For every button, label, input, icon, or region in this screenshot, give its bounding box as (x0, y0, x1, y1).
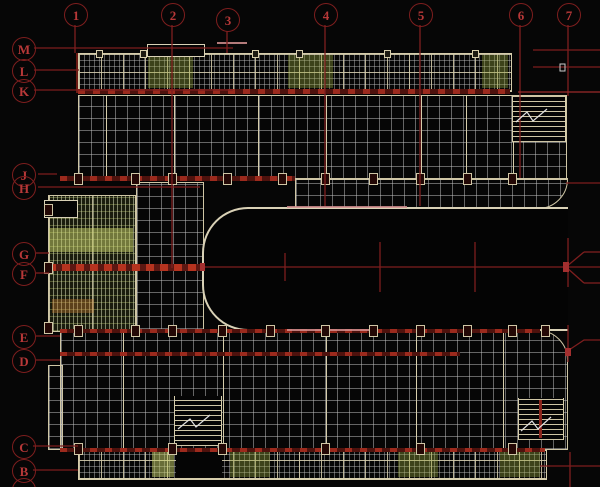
pink-accent (217, 42, 247, 44)
green-hatch-patch (288, 55, 333, 88)
axis-bubble-2: 2 (161, 3, 185, 27)
balcony-gap (176, 449, 222, 479)
column-marker (278, 173, 287, 185)
column-marker (168, 173, 177, 185)
column-marker (131, 173, 140, 185)
column-marker (321, 325, 330, 337)
top-wing-corridor-grid (295, 178, 568, 209)
red-wall-band (60, 352, 460, 356)
wall-line (421, 96, 422, 179)
wall-line (326, 96, 327, 179)
bottom-wing-balcony-grid (78, 450, 547, 480)
red-axis-band (48, 264, 205, 271)
bottom-wing-left-stub (48, 365, 63, 450)
axis-bubble-4: 4 (314, 3, 338, 27)
stair-top-right (512, 96, 566, 142)
column-marker (223, 173, 232, 185)
red-wall-band (60, 176, 295, 181)
wall-line (326, 331, 327, 449)
column-marker (218, 325, 227, 337)
green-hatch-patch (230, 451, 270, 477)
bottom-wing-room-grid (60, 330, 568, 450)
red-wall-band (78, 89, 510, 94)
red-wall-accent (76, 53, 78, 93)
column-marker (472, 50, 479, 58)
top-wing-room-grid (78, 95, 567, 180)
axis-bubble-6: 6 (509, 3, 533, 27)
column-marker (416, 443, 425, 455)
axis-bubble-5: 5 (409, 3, 433, 27)
column-marker (369, 325, 378, 337)
column-marker (321, 173, 330, 185)
column-marker (218, 443, 227, 455)
column-marker (74, 173, 83, 185)
column-marker (384, 50, 391, 58)
green-hatch-patch (482, 55, 508, 88)
axis-bubble-F: F (12, 262, 36, 286)
pink-accent (287, 206, 407, 208)
column-marker (168, 443, 177, 455)
axis-bubble-K: K (12, 79, 36, 103)
axis-bubble-D: D (12, 349, 36, 373)
column-marker (252, 50, 259, 58)
column-marker (44, 322, 53, 334)
column-marker (140, 50, 147, 58)
column-marker (369, 173, 378, 185)
pink-accent (287, 329, 377, 331)
cad-drawing-canvas: 1 2 3 4 5 6 7 M L K J H G F E D C B (0, 0, 600, 487)
wall-line (106, 96, 107, 179)
wall-line (174, 96, 175, 179)
axis-bubble-C: C (12, 435, 36, 459)
column-marker (463, 325, 472, 337)
green-hatch-patch (500, 451, 540, 477)
column-marker (508, 173, 517, 185)
roof-parapet (147, 44, 205, 57)
column-marker (508, 325, 517, 337)
column-marker (296, 50, 303, 58)
green-hatch-patch (148, 55, 193, 88)
stair-bottom-right (518, 398, 564, 440)
column-marker (463, 173, 472, 185)
column-marker (508, 443, 517, 455)
wall-line (123, 331, 124, 449)
bright-green-room (49, 228, 133, 252)
left-wing-room-grid (136, 182, 204, 330)
axis-bubble-H: H (12, 176, 36, 200)
wall-line (78, 478, 545, 479)
column-marker (44, 262, 53, 274)
wall-line (258, 96, 259, 179)
stair-bottom-left (174, 396, 222, 446)
column-marker (416, 173, 425, 185)
column-marker (168, 325, 177, 337)
red-wall-band (60, 448, 545, 452)
wall-line (223, 331, 224, 449)
column-marker (321, 443, 330, 455)
courtyard-void (202, 207, 568, 331)
axis-bubble-3: 3 (216, 8, 240, 32)
column-marker (416, 325, 425, 337)
column-marker (74, 325, 83, 337)
column-marker (96, 50, 103, 58)
column-marker (74, 443, 83, 455)
orange-room (52, 299, 94, 313)
stair-stringer (539, 400, 542, 438)
axis-bubble-1: 1 (64, 3, 88, 27)
axis-bubble-M: M (12, 37, 36, 61)
wall-line (416, 331, 417, 449)
wall-line (503, 331, 504, 449)
axis-bubble-7: 7 (557, 3, 581, 27)
column-marker (266, 325, 275, 337)
column-marker (44, 204, 53, 216)
wall-line (466, 96, 467, 179)
column-marker (541, 325, 550, 337)
axis-bubble-E: E (12, 325, 36, 349)
detail-mark (560, 64, 565, 71)
column-marker (131, 325, 140, 337)
